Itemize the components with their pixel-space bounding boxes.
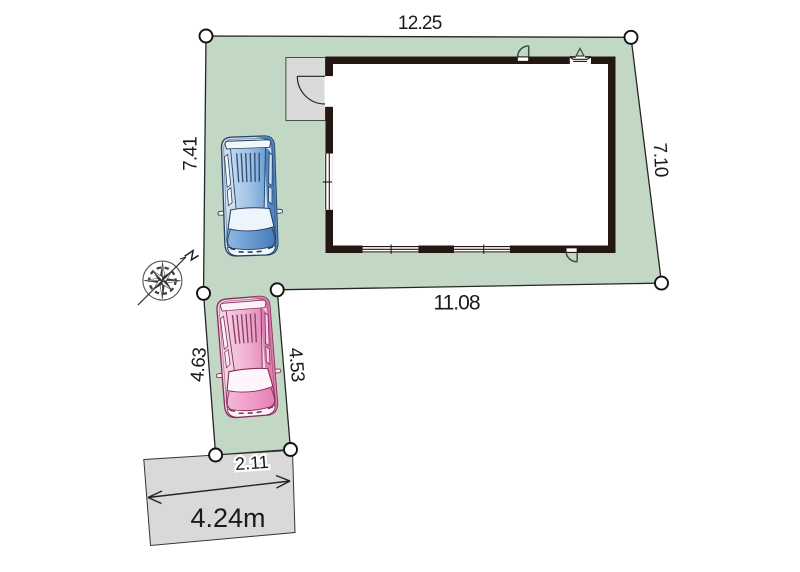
svg-text:2.11: 2.11 xyxy=(234,452,269,474)
svg-text:4.53: 4.53 xyxy=(284,347,308,383)
svg-text:7.41: 7.41 xyxy=(181,137,202,171)
svg-text:4.63: 4.63 xyxy=(187,347,211,383)
svg-text:12.25: 12.25 xyxy=(398,13,442,34)
svg-text:11.08: 11.08 xyxy=(434,292,480,315)
svg-text:7.10: 7.10 xyxy=(649,142,672,177)
svg-text:4.24m: 4.24m xyxy=(190,503,265,533)
